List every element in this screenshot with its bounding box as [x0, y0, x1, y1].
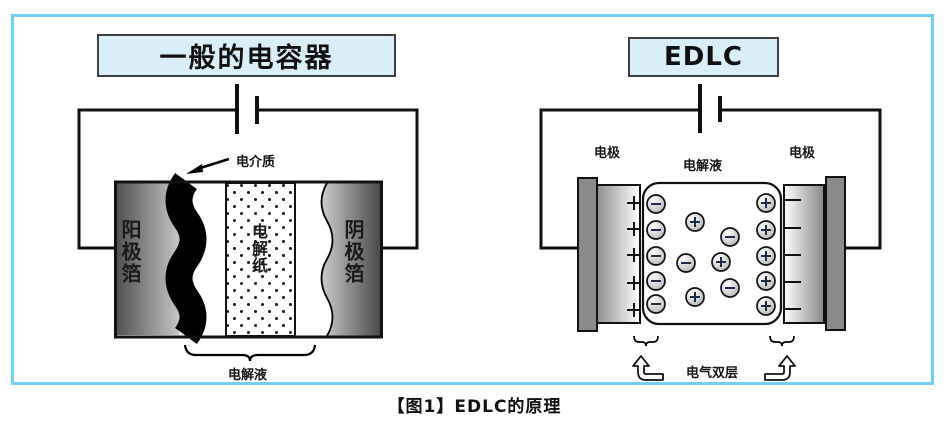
dielectric-label: 电介质: [236, 151, 275, 170]
electrode-right-label: 电极: [789, 142, 815, 161]
electrolyte-brace: [185, 345, 315, 361]
cathode-foil-label: 阴极箔: [343, 219, 363, 285]
left-battery-icon: [237, 84, 257, 134]
right-battery-icon: [700, 84, 720, 133]
electric-double-layer-label: 电气双层: [686, 362, 738, 381]
double-layer-brace-right: [770, 336, 794, 346]
figure-edlc-principle: 一般的电容器 EDLC 电介质 阳极箔 电解纸 阴极箔 电解液 电极 电解液 电…: [0, 0, 949, 426]
electrolyte-solution-label: 电解液: [683, 155, 722, 174]
right-diagram-title: EDLC: [628, 37, 779, 77]
electrolytic-paper-label: 电解纸: [250, 223, 266, 274]
dielectric-arrow-icon: [186, 159, 229, 174]
anode-foil-label: 阳极箔: [120, 219, 140, 285]
electrode-left-label: 电极: [594, 142, 620, 161]
electrolyte-label: 电解液: [228, 364, 267, 383]
left-collector-bar: [578, 178, 597, 331]
right-collector-bar: [826, 177, 845, 330]
curved-arrow-right-icon: [765, 356, 795, 380]
curved-arrow-left-icon: [633, 356, 663, 380]
dielectric-wavy-band: [179, 181, 193, 336]
double-layer-brace-left: [634, 336, 658, 346]
left-diagram-title: 一般的电容器: [97, 34, 396, 77]
figure-caption: 【图1】EDLC的原理: [0, 392, 949, 417]
